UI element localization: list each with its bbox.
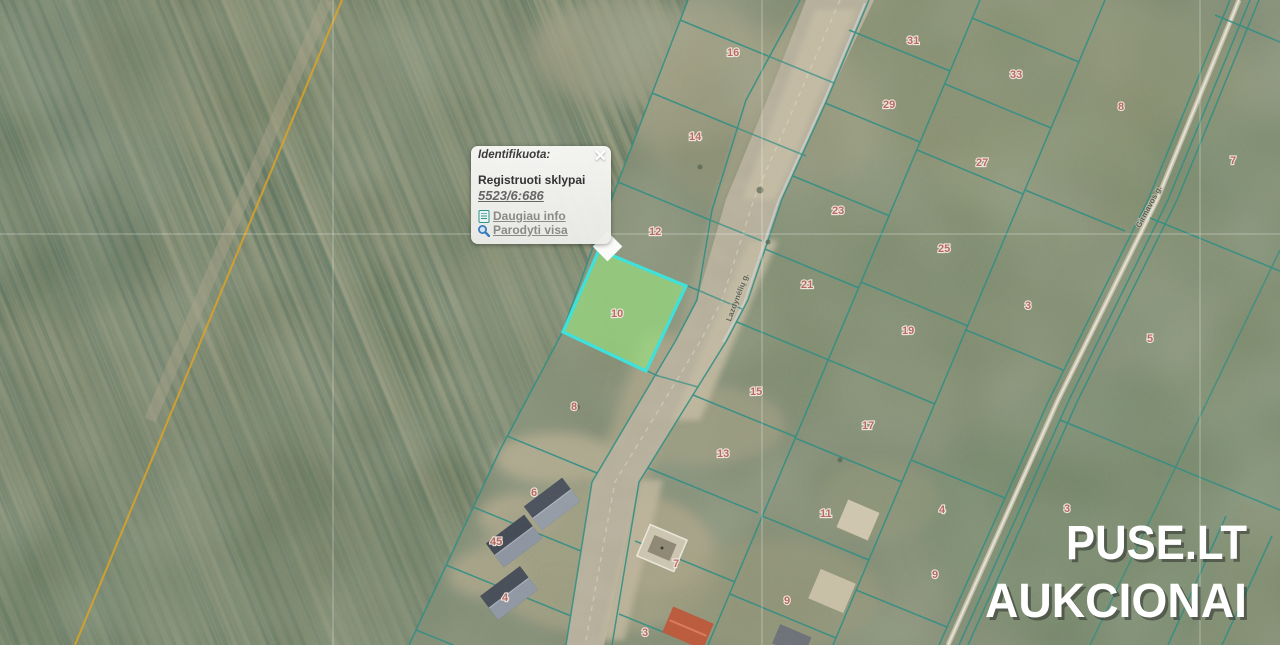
svg-text:12: 12 <box>649 226 661 238</box>
svg-text:29: 29 <box>883 99 895 111</box>
svg-text:AUKCIONAI: AUKCIONAI <box>985 575 1247 628</box>
svg-text:8: 8 <box>571 401 577 413</box>
svg-text:6: 6 <box>531 487 537 499</box>
svg-text:21: 21 <box>801 279 813 291</box>
svg-text:9: 9 <box>932 569 938 581</box>
svg-text:7: 7 <box>673 558 679 570</box>
svg-text:33: 33 <box>1010 69 1022 81</box>
svg-text:45: 45 <box>490 536 502 548</box>
svg-text:16: 16 <box>727 47 739 59</box>
svg-text:19: 19 <box>902 325 914 337</box>
svg-text:27: 27 <box>976 157 988 169</box>
svg-text:10: 10 <box>611 308 623 320</box>
svg-text:23: 23 <box>832 205 844 217</box>
svg-text:15: 15 <box>750 386 762 398</box>
svg-text:5: 5 <box>1147 333 1153 345</box>
svg-text:9: 9 <box>784 595 790 607</box>
svg-text:4: 4 <box>939 504 946 516</box>
svg-text:4: 4 <box>502 592 509 604</box>
svg-text:31: 31 <box>907 35 919 47</box>
svg-text:3: 3 <box>1064 503 1070 515</box>
svg-text:7: 7 <box>1230 155 1236 167</box>
svg-text:8: 8 <box>1118 101 1124 113</box>
svg-text:PUSE.LT: PUSE.LT <box>1066 517 1247 570</box>
svg-text:17: 17 <box>862 420 874 432</box>
svg-text:11: 11 <box>820 508 832 520</box>
svg-text:3: 3 <box>642 627 648 639</box>
svg-text:13: 13 <box>717 448 729 460</box>
svg-text:14: 14 <box>689 131 702 143</box>
svg-text:3: 3 <box>1025 300 1031 312</box>
svg-text:25: 25 <box>938 243 950 255</box>
